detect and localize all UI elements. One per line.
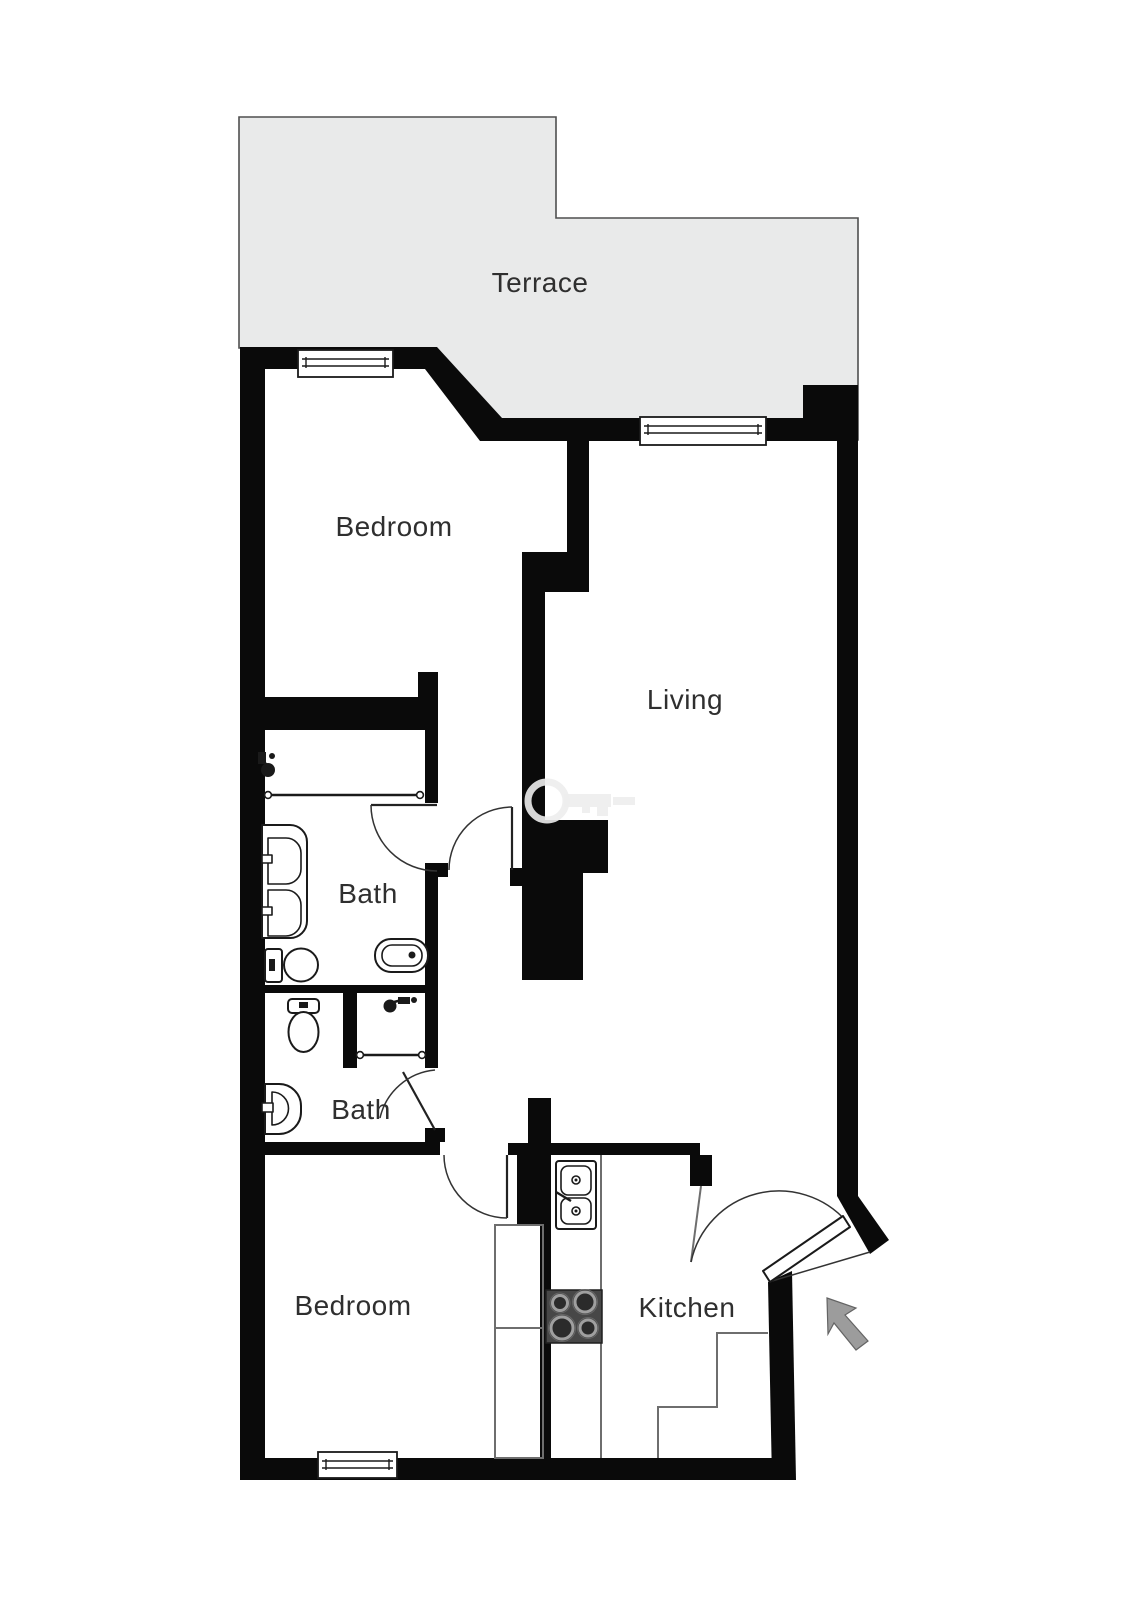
hand-basin-icon xyxy=(262,1084,301,1134)
door-swing xyxy=(449,807,512,870)
shower-glass xyxy=(265,792,424,799)
room-label-terrace: Terrace xyxy=(492,267,589,298)
door-swing xyxy=(444,1155,507,1218)
shower-glass xyxy=(357,1052,426,1059)
room-label-bedroom-2: Bedroom xyxy=(294,1290,411,1321)
toilet-icon xyxy=(288,999,319,1052)
floor-plan-svg: Terrace Bedroom Living Bath Bath Bedroom… xyxy=(0,0,1132,1600)
room-label-kitchen: Kitchen xyxy=(639,1292,736,1323)
toilet-icon xyxy=(265,949,318,983)
shower-head-icon xyxy=(384,997,418,1013)
room-label-bedroom-1: Bedroom xyxy=(335,511,452,542)
room-label-living: Living xyxy=(647,684,723,715)
bidet-icon xyxy=(375,939,428,972)
window xyxy=(298,350,393,377)
room-label-bath-2: Bath xyxy=(331,1094,391,1125)
entrance-arrow-icon xyxy=(827,1298,868,1350)
stairs xyxy=(658,1333,768,1458)
window xyxy=(640,417,766,445)
door-swing xyxy=(371,805,437,871)
double-vanity xyxy=(262,825,307,938)
wardrobe xyxy=(495,1225,543,1458)
window xyxy=(318,1452,397,1478)
floor-plan-page: Terrace Bedroom Living Bath Bath Bedroom… xyxy=(0,0,1132,1600)
kitchen-sink-icon xyxy=(556,1161,596,1229)
stove-icon xyxy=(546,1290,602,1344)
room-label-bath-1: Bath xyxy=(338,878,398,909)
